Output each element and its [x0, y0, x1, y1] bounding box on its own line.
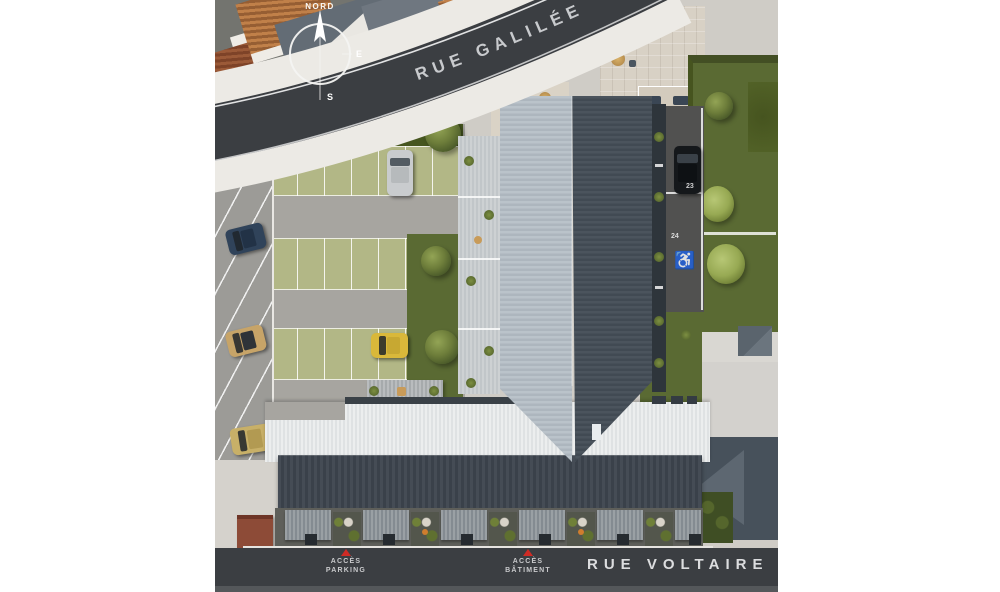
ground-floor-row [275, 508, 703, 546]
shrub-icon [681, 330, 691, 340]
door [383, 534, 395, 545]
parking-row-2 [270, 238, 407, 290]
skylight [592, 424, 601, 440]
access-marker-icon [523, 549, 533, 556]
car-roof [387, 337, 400, 354]
bush-icon [707, 244, 745, 284]
planter-icon [466, 378, 476, 388]
car-windshield [379, 336, 386, 355]
rue-voltaire-label: RUE VOLTAIRE [587, 556, 768, 573]
acces-parking-line1: ACCÈS [322, 558, 370, 567]
patio [645, 512, 673, 546]
door [689, 534, 701, 545]
door [539, 534, 551, 545]
stall-number: 24 [671, 233, 679, 240]
planter-icon [466, 276, 476, 286]
planter-icon [429, 386, 439, 396]
site-plan-scene: 22 23 24 ♿ [215, 0, 778, 592]
terrace-divider [458, 328, 500, 330]
street-far-sidewalk [215, 586, 778, 592]
balcony-plant-icon [654, 358, 664, 368]
site-plan-image: 22 23 24 ♿ [0, 0, 1000, 592]
door [461, 534, 473, 545]
acces-parking-label: ACCÈS PARKING [322, 549, 370, 575]
planter-icon [484, 210, 494, 220]
patio [411, 512, 439, 546]
acces-batiment-label: ACCÈS BÂTIMENT [504, 549, 552, 575]
roof-vent [652, 396, 666, 404]
acces-batiment-line2: BÂTIMENT [504, 567, 552, 576]
tree-icon [425, 330, 459, 364]
terrace-divider [458, 258, 500, 260]
south-building-roof-dark [278, 455, 702, 509]
acces-batiment-line1: ACCÈS [504, 558, 552, 567]
compass-north-label: NORD [305, 2, 335, 11]
planter-icon [484, 346, 494, 356]
patio [489, 512, 517, 546]
roof-step-cover [265, 402, 345, 420]
handicap-icon: ♿ [674, 251, 695, 271]
roof-vent [671, 396, 683, 404]
tree-icon [421, 246, 451, 276]
compass-rose: NORD E S [270, 0, 380, 112]
car-yellow [371, 333, 408, 358]
door [617, 534, 629, 545]
balcony-rail [655, 286, 663, 289]
door [305, 534, 317, 545]
balcony-plant-icon [654, 316, 664, 326]
access-marker-icon [341, 549, 351, 556]
balcony-plant-icon [654, 252, 664, 262]
patio [567, 512, 595, 546]
table-icon [474, 236, 482, 244]
compass-east-label: E [356, 49, 362, 59]
table-icon [397, 387, 406, 396]
acces-parking-line2: PARKING [322, 567, 370, 576]
neighbor-garage-roof [738, 326, 772, 356]
patio [333, 512, 361, 546]
compass-south-label: S [327, 92, 333, 102]
planter-icon [369, 386, 379, 396]
car-roof [247, 428, 264, 449]
roof-vent [687, 396, 697, 404]
